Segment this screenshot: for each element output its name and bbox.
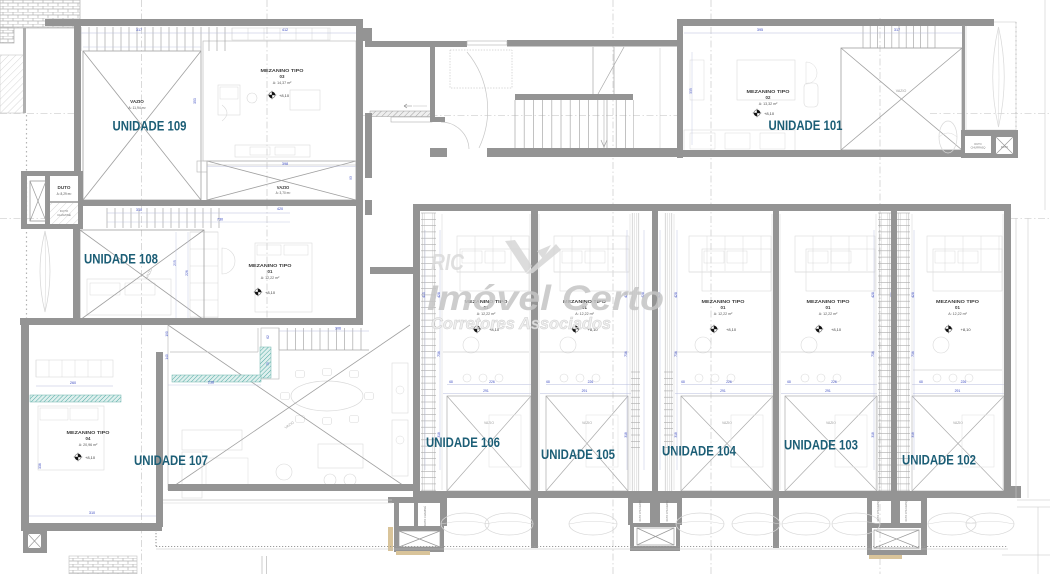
svg-text:428: 428 <box>911 292 915 298</box>
svg-text:310: 310 <box>136 208 142 212</box>
svg-text:DUTO CHURRASQ: DUTO CHURRASQ <box>877 500 880 521</box>
svg-text:291: 291 <box>483 389 489 393</box>
svg-text:238: 238 <box>208 381 214 385</box>
svg-text:A: 12,22 m²: A: 12,22 m² <box>819 312 838 316</box>
svg-text:RIC: RIC <box>431 249 464 275</box>
svg-text:226: 226 <box>588 380 594 384</box>
svg-text:75: 75 <box>266 362 270 366</box>
svg-text:736: 736 <box>437 351 441 357</box>
svg-text:736: 736 <box>871 351 875 357</box>
svg-text:CHAMINÉ: CHAMINÉ <box>57 212 71 217</box>
svg-text:DUTO: DUTO <box>58 185 71 190</box>
svg-text:226: 226 <box>831 380 837 384</box>
svg-text:+8,10: +8,10 <box>265 290 276 295</box>
svg-text:68: 68 <box>681 380 685 384</box>
svg-text:335: 335 <box>689 88 693 94</box>
svg-text:+8,10: +8,10 <box>961 327 972 332</box>
svg-text:01: 01 <box>268 269 273 274</box>
svg-text:MEZANINO TIPO: MEZANINO TIPO <box>807 299 850 304</box>
svg-text:226: 226 <box>489 380 495 384</box>
svg-text:+8,10: +8,10 <box>85 455 96 460</box>
svg-text:MEZANINO TIPO: MEZANINO TIPO <box>249 263 292 268</box>
svg-text:291: 291 <box>825 389 831 393</box>
svg-text:+8,10: +8,10 <box>279 93 290 98</box>
svg-text:428: 428 <box>871 292 875 298</box>
svg-text:318: 318 <box>437 432 441 438</box>
svg-text:318: 318 <box>871 432 875 438</box>
svg-text:353: 353 <box>193 98 197 104</box>
svg-text:68: 68 <box>449 380 453 384</box>
svg-text:Corretores Associados: Corretores Associados <box>431 314 611 333</box>
svg-text:A: 12,22 m²: A: 12,22 m² <box>714 312 733 316</box>
svg-text:291: 291 <box>955 389 961 393</box>
svg-text:730: 730 <box>217 218 223 222</box>
svg-text:+8,10: +8,10 <box>726 327 737 332</box>
svg-text:+8,10: +8,10 <box>764 111 775 116</box>
svg-text:CHURRASQ: CHURRASQ <box>971 146 986 150</box>
svg-text:68: 68 <box>546 380 550 384</box>
svg-text:UNIDADE 105: UNIDADE 105 <box>541 446 615 462</box>
svg-text:62: 62 <box>266 335 270 339</box>
svg-text:UNIDADE 104: UNIDADE 104 <box>662 443 736 459</box>
svg-text:03: 03 <box>280 74 285 79</box>
svg-text:318: 318 <box>911 432 915 438</box>
svg-text:DUTO CHURRASQ: DUTO CHURRASQ <box>905 500 908 521</box>
svg-text:A: 14,37 m²: A: 14,37 m² <box>273 81 292 85</box>
svg-text:336: 336 <box>38 463 42 469</box>
svg-text:A: 12,22 m²: A: 12,22 m² <box>948 312 967 316</box>
svg-text:VAZIO: VAZIO <box>277 185 290 190</box>
svg-text:A: 13,32 m²: A: 13,32 m² <box>759 102 778 106</box>
svg-text:205: 205 <box>173 260 177 266</box>
svg-text:DUTO: DUTO <box>974 142 981 146</box>
svg-text:DUTO CHURRASQ: DUTO CHURRASQ <box>666 500 669 521</box>
svg-text:68: 68 <box>787 380 791 384</box>
svg-text:291: 291 <box>720 389 726 393</box>
svg-text:412: 412 <box>282 28 288 32</box>
svg-text:398: 398 <box>282 162 288 166</box>
svg-text:428: 428 <box>674 292 678 298</box>
svg-text:MEZANINO TIPO: MEZANINO TIPO <box>67 430 110 435</box>
svg-text:+8,10: +8,10 <box>831 327 842 332</box>
svg-text:291: 291 <box>582 389 588 393</box>
svg-text:VAZIO: VAZIO <box>582 421 592 425</box>
svg-text:93: 93 <box>349 176 353 180</box>
svg-text:736: 736 <box>674 351 678 357</box>
svg-text:UNIDADE 103: UNIDADE 103 <box>784 437 858 453</box>
svg-text:01: 01 <box>955 305 960 310</box>
svg-text:736: 736 <box>911 351 915 357</box>
svg-text:VAZIO: VAZIO <box>896 89 907 93</box>
svg-text:317: 317 <box>894 28 900 32</box>
svg-text:02: 02 <box>766 95 771 100</box>
svg-text:306: 306 <box>335 327 341 331</box>
svg-text:68: 68 <box>919 380 923 384</box>
svg-text:415: 415 <box>422 292 426 298</box>
svg-text:UNIDADE 102: UNIDADE 102 <box>902 452 976 468</box>
svg-text:01: 01 <box>826 305 831 310</box>
svg-text:DUTO CHURRASQ: DUTO CHURRASQ <box>639 500 642 521</box>
svg-text:A: 20,96 m²: A: 20,96 m² <box>79 443 98 447</box>
svg-text:260: 260 <box>70 381 76 385</box>
svg-text:01: 01 <box>721 305 726 310</box>
svg-text:MEZANINO TIPO: MEZANINO TIPO <box>702 299 745 304</box>
svg-text:395: 395 <box>757 28 763 32</box>
svg-text:A: 11,94 m²: A: 11,94 m² <box>128 106 146 110</box>
svg-text:UNIDADE 108: UNIDADE 108 <box>84 251 158 267</box>
svg-text:318: 318 <box>624 432 628 438</box>
svg-text:140: 140 <box>165 354 169 360</box>
svg-text:UNIDADE 101: UNIDADE 101 <box>769 117 843 133</box>
svg-text:317: 317 <box>136 28 142 32</box>
svg-text:420: 420 <box>277 207 283 211</box>
svg-text:MEZANINO TIPO: MEZANINO TIPO <box>747 89 790 94</box>
svg-text:310: 310 <box>89 511 95 515</box>
svg-text:MEZANINO TIPO: MEZANINO TIPO <box>261 68 304 73</box>
svg-text:UNIDADE 109: UNIDADE 109 <box>113 118 187 134</box>
svg-text:A: 3,70 m²: A: 3,70 m² <box>276 191 291 195</box>
svg-text:226: 226 <box>185 270 189 276</box>
svg-text:04: 04 <box>86 436 91 441</box>
svg-text:MEZANINO TIPO: MEZANINO TIPO <box>936 299 979 304</box>
svg-text:A: 12,22 m²: A: 12,22 m² <box>261 276 280 280</box>
svg-text:226: 226 <box>726 380 732 384</box>
svg-text:736: 736 <box>624 351 628 357</box>
svg-text:190: 190 <box>165 331 169 337</box>
svg-text:318: 318 <box>674 432 678 438</box>
svg-text:226: 226 <box>961 380 967 384</box>
svg-text:Imóvel Certo: Imóvel Certo <box>427 279 664 318</box>
svg-text:VAZIO: VAZIO <box>130 99 144 104</box>
svg-text:DUTO: DUTO <box>1001 145 1008 149</box>
svg-text:UNIDADE 107: UNIDADE 107 <box>134 452 208 468</box>
svg-text:A: 8,29 m²: A: 8,29 m² <box>57 192 72 196</box>
